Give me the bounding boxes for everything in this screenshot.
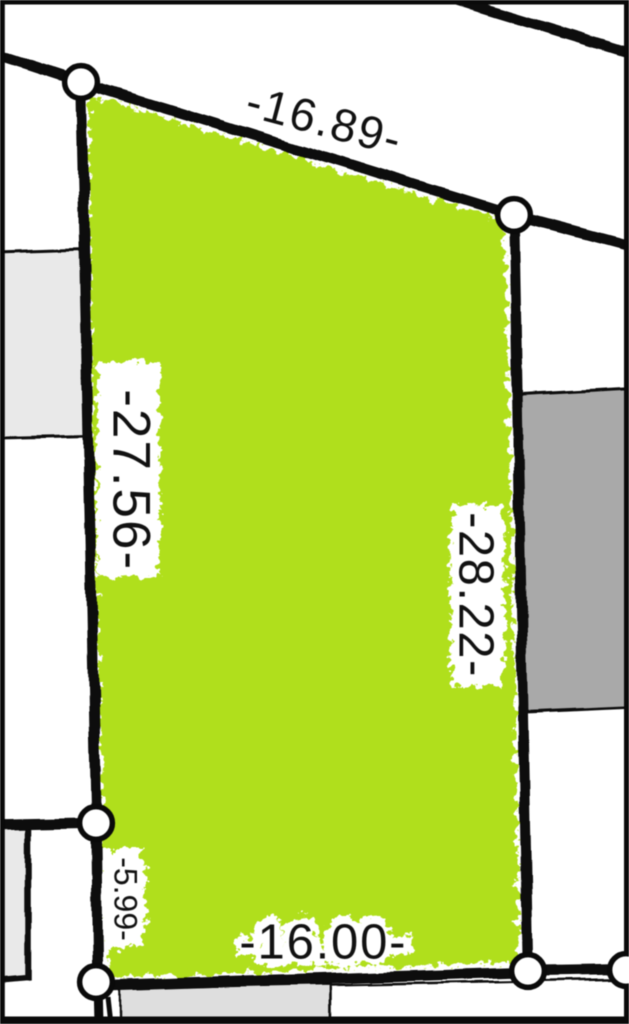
svg-text:-5.99-: -5.99- xyxy=(108,857,144,941)
svg-text:-28.22-: -28.22- xyxy=(449,512,503,678)
svg-text:-16.00-: -16.00- xyxy=(239,916,407,970)
svg-text:-27.56-: -27.56- xyxy=(101,389,160,571)
